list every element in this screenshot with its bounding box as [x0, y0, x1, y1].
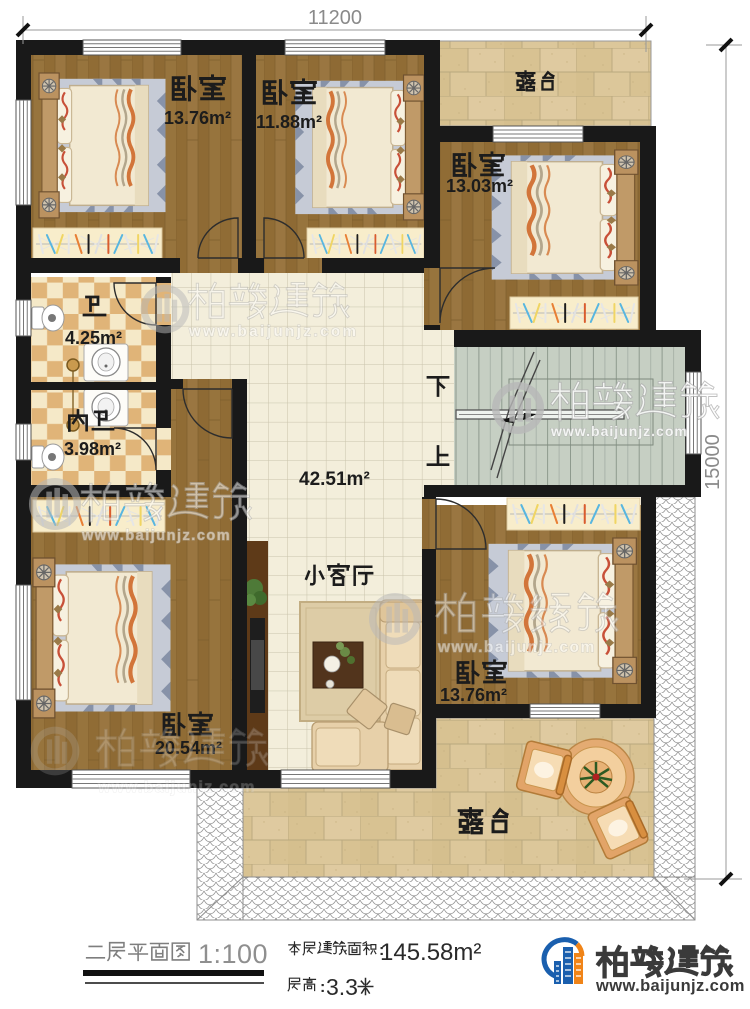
svg-text:3.98m²: 3.98m²	[64, 439, 121, 459]
svg-text:11.88m²: 11.88m²	[256, 112, 322, 132]
svg-text:www.baijunjz.com: www.baijunjz.com	[81, 528, 231, 544]
svg-text:13.76m²: 13.76m²	[164, 108, 231, 128]
svg-text:www.baijunjz.com: www.baijunjz.com	[188, 323, 358, 340]
svg-text:13.76m²: 13.76m²	[440, 685, 507, 705]
svg-text::: :	[320, 979, 325, 996]
svg-text:4.25m²: 4.25m²	[65, 328, 122, 348]
svg-text:www.baijunjz.com: www.baijunjz.com	[550, 423, 688, 439]
svg-text:145.58m²: 145.58m²	[380, 939, 481, 966]
svg-text:3.3: 3.3	[326, 974, 358, 1000]
svg-text:www.baijunjz.com: www.baijunjz.com	[437, 639, 596, 656]
svg-text:www.baijunjz.com: www.baijunjz.com	[595, 977, 745, 995]
svg-text:42.51m²: 42.51m²	[299, 469, 370, 490]
svg-text:13.03m²: 13.03m²	[446, 176, 513, 196]
svg-text:15000: 15000	[702, 434, 724, 490]
svg-text:11200: 11200	[308, 7, 362, 29]
svg-text:1:100: 1:100	[198, 939, 268, 969]
svg-text:www.baijunjz.com: www.baijunjz.com	[97, 779, 256, 796]
